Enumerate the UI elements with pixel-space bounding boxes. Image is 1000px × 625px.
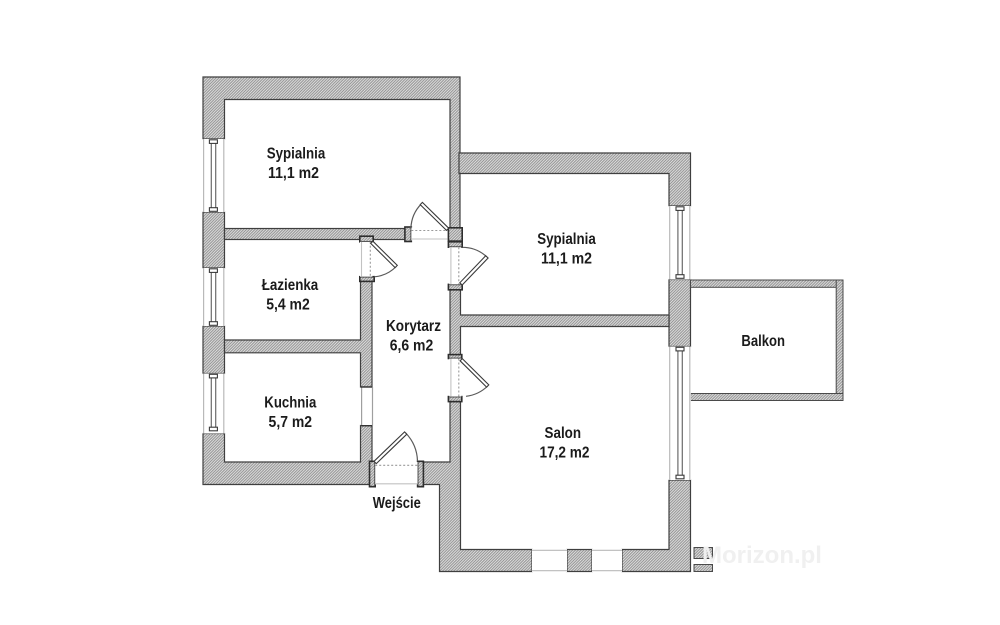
svg-text:Wejście: Wejście — [373, 495, 421, 512]
svg-text:Balkon: Balkon — [741, 333, 785, 350]
svg-text:Sypialnia: Sypialnia — [537, 231, 596, 248]
svg-text:Kuchnia: Kuchnia — [264, 395, 316, 412]
svg-text:17,2 m2: 17,2 m2 — [540, 445, 590, 462]
svg-text:11,1 m2: 11,1 m2 — [541, 250, 592, 267]
svg-text:11,1 m2: 11,1 m2 — [268, 165, 319, 182]
svg-text:6,6 m2: 6,6 m2 — [390, 337, 434, 354]
svg-text:Łazienka: Łazienka — [262, 277, 319, 294]
svg-text:Salon: Salon — [545, 425, 582, 442]
svg-text:5,7 m2: 5,7 m2 — [269, 414, 313, 431]
svg-text:Korytarz: Korytarz — [386, 318, 441, 335]
svg-text:5,4 m2: 5,4 m2 — [266, 296, 310, 313]
svg-text:Sypialnia: Sypialnia — [267, 146, 326, 163]
svg-text:Morizon.pl: Morizon.pl — [702, 542, 822, 569]
